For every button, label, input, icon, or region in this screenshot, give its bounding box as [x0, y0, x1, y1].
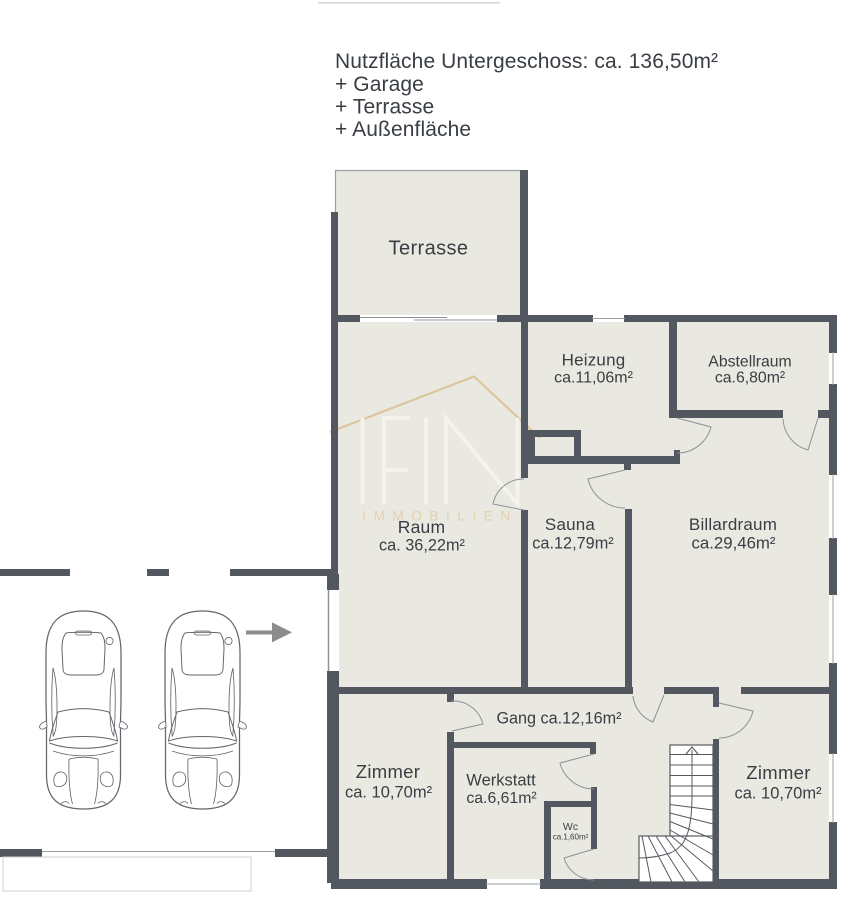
svg-text:Werkstatt: Werkstatt: [466, 772, 536, 790]
svg-text:Heizung: Heizung: [562, 351, 626, 370]
svg-text:Gang ca.12,16m²: Gang ca.12,16m²: [496, 710, 622, 728]
svg-text:+ Außenfläche: + Außenfläche: [335, 118, 471, 141]
svg-text:ca. 36,22m²: ca. 36,22m²: [379, 537, 466, 555]
svg-text:ca. 10,70m²: ca. 10,70m²: [345, 784, 433, 802]
svg-text:ca.6,61m²: ca.6,61m²: [466, 790, 536, 807]
svg-text:Terrasse: Terrasse: [389, 238, 469, 260]
svg-text:Sauna: Sauna: [545, 515, 596, 534]
svg-text:ca.6,80m²: ca.6,80m²: [715, 370, 785, 387]
svg-text:Raum: Raum: [398, 517, 445, 537]
svg-text:Abstellraum: Abstellraum: [708, 354, 791, 371]
svg-text:Nutzfläche Untergeschoss: ca.: Nutzfläche Untergeschoss: ca. 136,50m²: [335, 50, 718, 73]
svg-text:ca.12,79m²: ca.12,79m²: [532, 535, 614, 553]
svg-text:ca.29,46m²: ca.29,46m²: [692, 534, 776, 553]
svg-text:Wc: Wc: [563, 821, 578, 833]
svg-text:Zimmer: Zimmer: [746, 762, 810, 783]
svg-text:Billardraum: Billardraum: [689, 515, 777, 534]
svg-text:ca.11,06m²: ca.11,06m²: [554, 370, 634, 387]
svg-text:+ Terrasse: + Terrasse: [335, 96, 434, 119]
svg-text:Zimmer: Zimmer: [356, 761, 420, 782]
svg-text:ca. 10,70m²: ca. 10,70m²: [734, 785, 822, 803]
svg-text:ca.1,60m²: ca.1,60m²: [553, 833, 589, 842]
svg-text:+ Garage: + Garage: [335, 73, 424, 96]
